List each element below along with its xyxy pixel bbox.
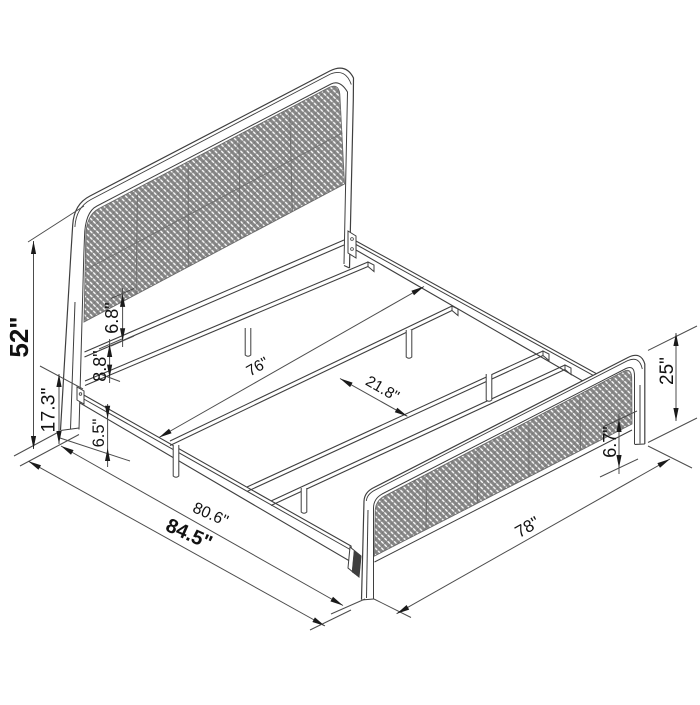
svg-text:25": 25"	[657, 357, 678, 385]
svg-text:6.7": 6.7"	[600, 426, 620, 457]
svg-text:52": 52"	[4, 316, 34, 357]
svg-text:8.8": 8.8"	[90, 350, 110, 381]
svg-text:6.8": 6.8"	[102, 302, 122, 333]
svg-text:6.5": 6.5"	[90, 418, 108, 447]
svg-text:17.3": 17.3"	[38, 387, 60, 432]
